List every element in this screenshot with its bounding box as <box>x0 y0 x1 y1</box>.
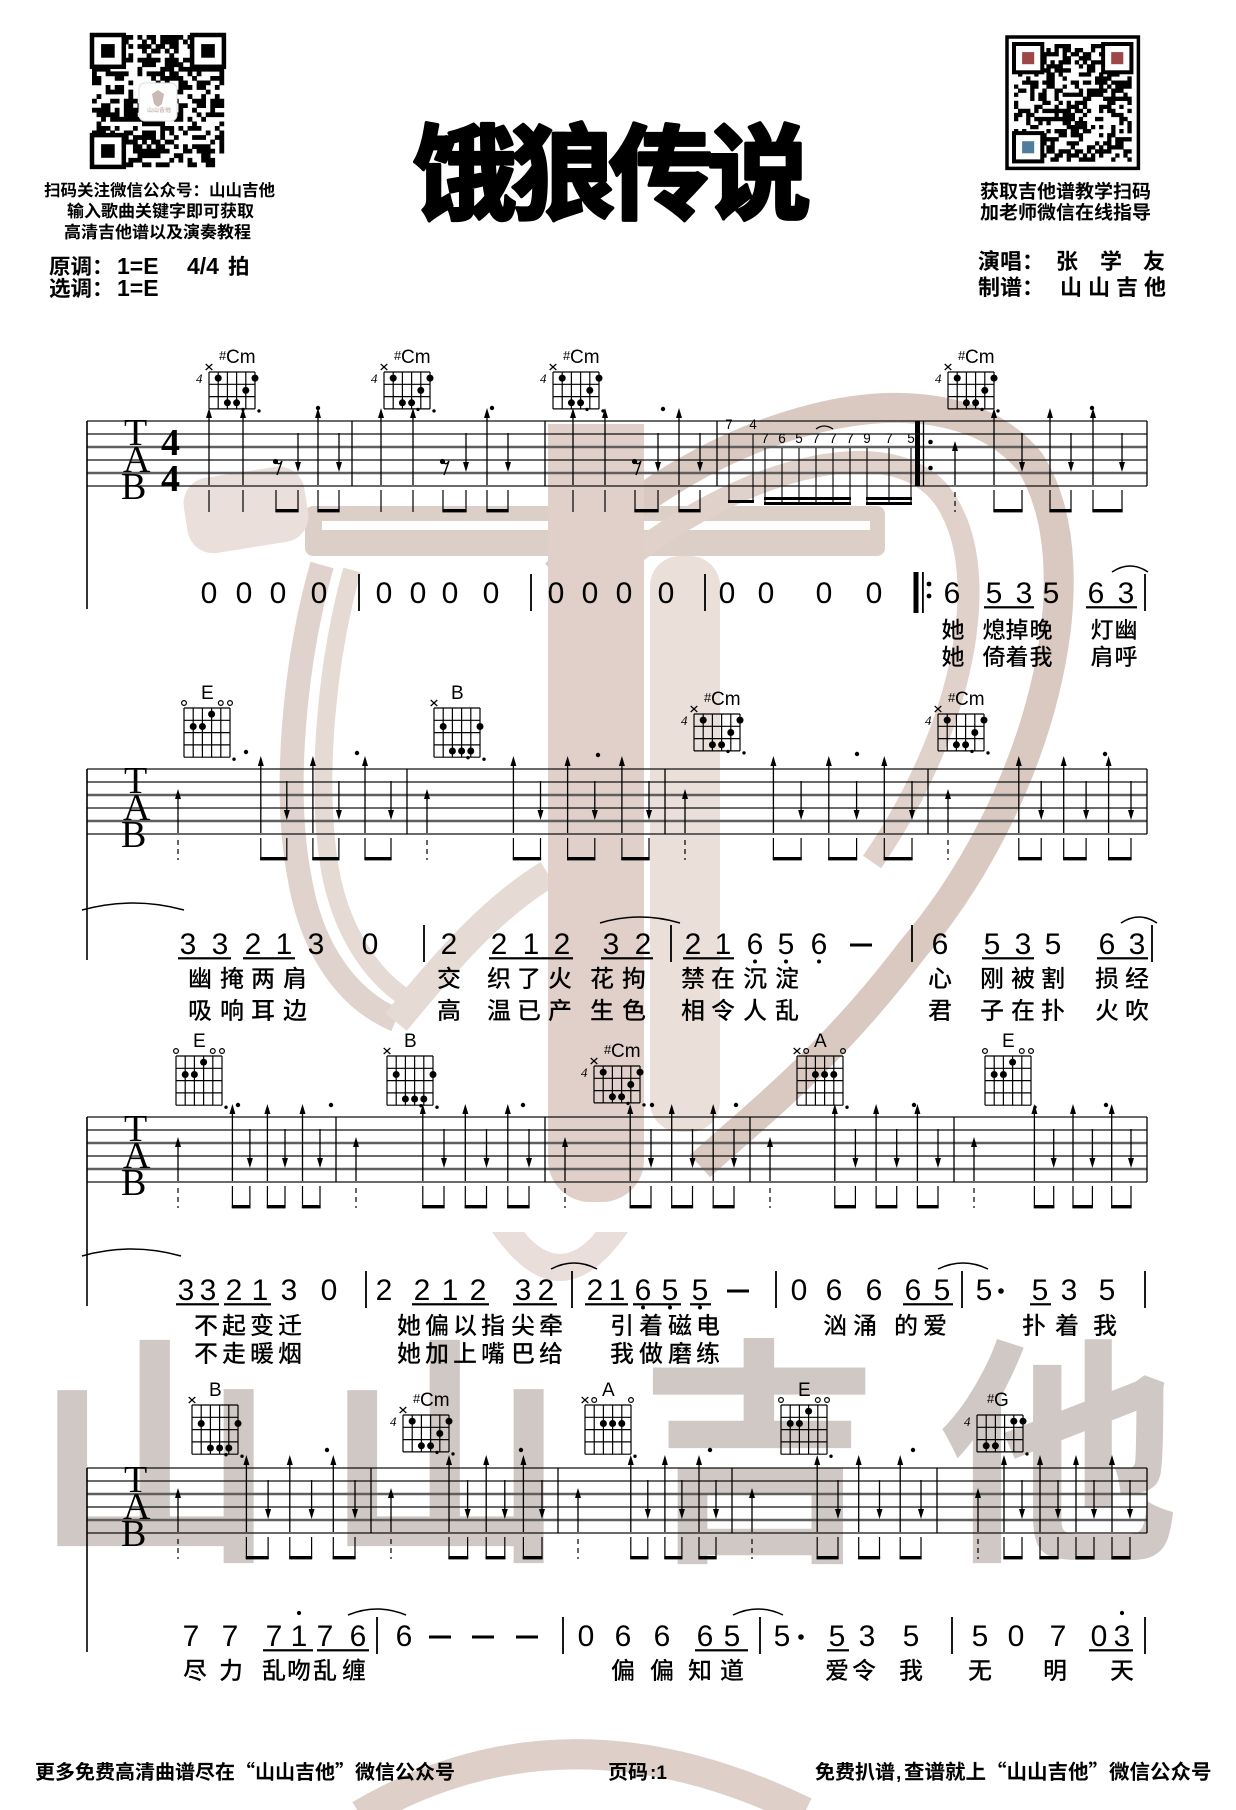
svg-text:5: 5 <box>1099 1274 1116 1307</box>
svg-text:5: 5 <box>774 1620 791 1653</box>
svg-text:5: 5 <box>724 1620 741 1653</box>
svg-text:0: 0 <box>311 577 328 610</box>
svg-text:2: 2 <box>635 928 652 961</box>
svg-text:B: B <box>121 466 146 508</box>
svg-text:2: 2 <box>554 928 571 961</box>
svg-text:0: 0 <box>483 577 500 610</box>
svg-text:5: 5 <box>829 1620 846 1653</box>
svg-text:E: E <box>798 1380 811 1401</box>
svg-text:2: 2 <box>414 1274 431 1307</box>
svg-text:3: 3 <box>200 1274 217 1307</box>
svg-text:1=E: 1=E <box>117 275 159 301</box>
svg-text:3: 3 <box>603 928 620 961</box>
svg-text:0: 0 <box>548 577 565 610</box>
svg-text:3: 3 <box>178 1274 195 1307</box>
svg-text:4/4: 4/4 <box>187 253 219 279</box>
svg-text:2: 2 <box>441 928 458 961</box>
svg-text:4: 4 <box>581 1065 588 1080</box>
svg-text:3: 3 <box>308 928 325 961</box>
svg-text:5: 5 <box>1043 577 1060 610</box>
svg-text:4: 4 <box>196 371 203 386</box>
svg-text:3: 3 <box>1016 577 1033 610</box>
svg-text:4: 4 <box>925 713 932 728</box>
svg-text:0: 0 <box>719 577 736 610</box>
svg-text:2: 2 <box>491 928 508 961</box>
svg-text:6: 6 <box>932 928 949 961</box>
svg-text:Cm: Cm <box>711 689 741 710</box>
svg-text:6: 6 <box>396 1620 413 1653</box>
svg-text:4: 4 <box>749 417 757 432</box>
svg-text:Cm: Cm <box>570 347 600 368</box>
svg-text:1: 1 <box>715 928 732 961</box>
svg-text:4: 4 <box>681 713 688 728</box>
svg-text:0: 0 <box>616 577 633 610</box>
svg-text:6: 6 <box>826 1274 843 1307</box>
svg-text:6: 6 <box>635 1274 652 1307</box>
svg-text:,: , <box>896 1763 901 1784</box>
svg-text:5: 5 <box>976 1274 993 1307</box>
svg-text:6: 6 <box>615 1620 632 1653</box>
svg-text:7: 7 <box>317 1620 334 1653</box>
svg-text:6: 6 <box>944 577 961 610</box>
svg-text:6: 6 <box>1088 577 1105 610</box>
svg-text:B: B <box>209 1380 222 1401</box>
svg-text:0: 0 <box>1008 1620 1025 1653</box>
svg-text:Cm: Cm <box>226 347 256 368</box>
svg-text:2: 2 <box>470 1274 487 1307</box>
svg-text:6: 6 <box>905 1274 922 1307</box>
svg-text::1: :1 <box>650 1763 667 1784</box>
svg-text:1: 1 <box>442 1274 459 1307</box>
svg-text:Cm: Cm <box>955 689 985 710</box>
svg-text:6: 6 <box>654 1620 671 1653</box>
svg-text:7: 7 <box>1050 1620 1067 1653</box>
svg-text:3: 3 <box>1118 577 1135 610</box>
svg-text:4: 4 <box>390 1414 397 1429</box>
svg-text:0: 0 <box>758 577 775 610</box>
svg-text:A: A <box>602 1380 615 1401</box>
svg-text:B: B <box>121 1513 146 1555</box>
svg-text:4: 4 <box>964 1414 971 1429</box>
svg-text:5: 5 <box>972 1620 989 1653</box>
svg-text:6: 6 <box>350 1620 367 1653</box>
svg-text:1: 1 <box>609 1274 626 1307</box>
svg-text:3: 3 <box>859 1620 876 1653</box>
svg-text:9: 9 <box>863 431 871 446</box>
svg-text:0: 0 <box>201 577 218 610</box>
svg-text:0: 0 <box>791 1274 808 1307</box>
svg-text:Cm: Cm <box>401 347 431 368</box>
svg-text:4: 4 <box>935 371 942 386</box>
svg-text:4: 4 <box>540 371 547 386</box>
svg-text:5: 5 <box>903 1620 920 1653</box>
svg-text:1: 1 <box>276 928 293 961</box>
svg-text:5: 5 <box>934 1274 951 1307</box>
svg-text:6: 6 <box>811 928 828 961</box>
svg-text:4: 4 <box>161 458 180 500</box>
svg-text:7: 7 <box>885 431 893 446</box>
svg-text:6: 6 <box>747 928 764 961</box>
svg-text:B: B <box>121 814 146 856</box>
svg-text:4: 4 <box>371 371 378 386</box>
svg-text:3: 3 <box>281 1274 298 1307</box>
svg-text:0: 0 <box>816 577 833 610</box>
svg-text:5: 5 <box>907 431 915 446</box>
svg-text:1: 1 <box>291 1620 308 1653</box>
svg-text:5: 5 <box>662 1274 679 1307</box>
svg-text:E: E <box>201 683 214 704</box>
svg-text:1: 1 <box>523 928 540 961</box>
svg-text:0: 0 <box>270 577 287 610</box>
svg-text:6: 6 <box>866 1274 883 1307</box>
svg-text:0: 0 <box>442 577 459 610</box>
svg-text:0: 0 <box>582 577 599 610</box>
svg-text:7: 7 <box>761 431 769 446</box>
svg-text:0: 0 <box>376 577 393 610</box>
svg-text:Cm: Cm <box>611 1041 641 1062</box>
svg-text:3: 3 <box>1114 1620 1131 1653</box>
svg-text:A: A <box>814 1031 827 1052</box>
svg-text:0: 0 <box>578 1620 595 1653</box>
svg-text:7: 7 <box>222 1620 239 1653</box>
svg-text:2: 2 <box>376 1274 393 1307</box>
svg-text:7: 7 <box>725 417 733 432</box>
svg-text:Cm: Cm <box>420 1390 450 1411</box>
svg-text:2: 2 <box>245 928 262 961</box>
svg-text:B: B <box>121 1162 146 1204</box>
svg-text:3: 3 <box>1061 1274 1078 1307</box>
svg-text:2: 2 <box>538 1274 555 1307</box>
svg-text:2: 2 <box>587 1274 604 1307</box>
svg-text:7: 7 <box>812 431 820 446</box>
svg-text:3: 3 <box>212 928 229 961</box>
svg-text:7: 7 <box>266 1620 283 1653</box>
svg-text:5: 5 <box>778 928 795 961</box>
svg-text:1: 1 <box>252 1274 269 1307</box>
svg-text:6: 6 <box>778 431 786 446</box>
svg-text:5: 5 <box>692 1274 709 1307</box>
svg-text:G: G <box>994 1390 1009 1411</box>
svg-text:3: 3 <box>180 928 197 961</box>
svg-text:7: 7 <box>829 431 837 446</box>
svg-text:0: 0 <box>866 577 883 610</box>
svg-text:0: 0 <box>658 577 675 610</box>
svg-text:B: B <box>404 1031 417 1052</box>
svg-text:5: 5 <box>984 928 1001 961</box>
svg-text:5: 5 <box>986 577 1003 610</box>
svg-text:2: 2 <box>226 1274 243 1307</box>
svg-text:0: 0 <box>321 1274 338 1307</box>
svg-text:7: 7 <box>846 431 854 446</box>
svg-text:3: 3 <box>1015 928 1032 961</box>
svg-text:3: 3 <box>515 1274 532 1307</box>
svg-text:6: 6 <box>1099 928 1116 961</box>
svg-text:E: E <box>1002 1031 1015 1052</box>
svg-text:7: 7 <box>183 1620 200 1653</box>
svg-text:0: 0 <box>236 577 253 610</box>
svg-text:6: 6 <box>697 1620 714 1653</box>
svg-text:Cm: Cm <box>965 347 995 368</box>
svg-text:2: 2 <box>685 928 702 961</box>
svg-text:5: 5 <box>1045 928 1062 961</box>
svg-text:0: 0 <box>410 577 427 610</box>
svg-text:5: 5 <box>1032 1274 1049 1307</box>
svg-text:0: 0 <box>362 928 379 961</box>
svg-text:3: 3 <box>1129 928 1146 961</box>
svg-text:5: 5 <box>795 431 803 446</box>
svg-text:E: E <box>193 1031 206 1052</box>
svg-text:B: B <box>451 683 464 704</box>
svg-text:0: 0 <box>1091 1620 1108 1653</box>
